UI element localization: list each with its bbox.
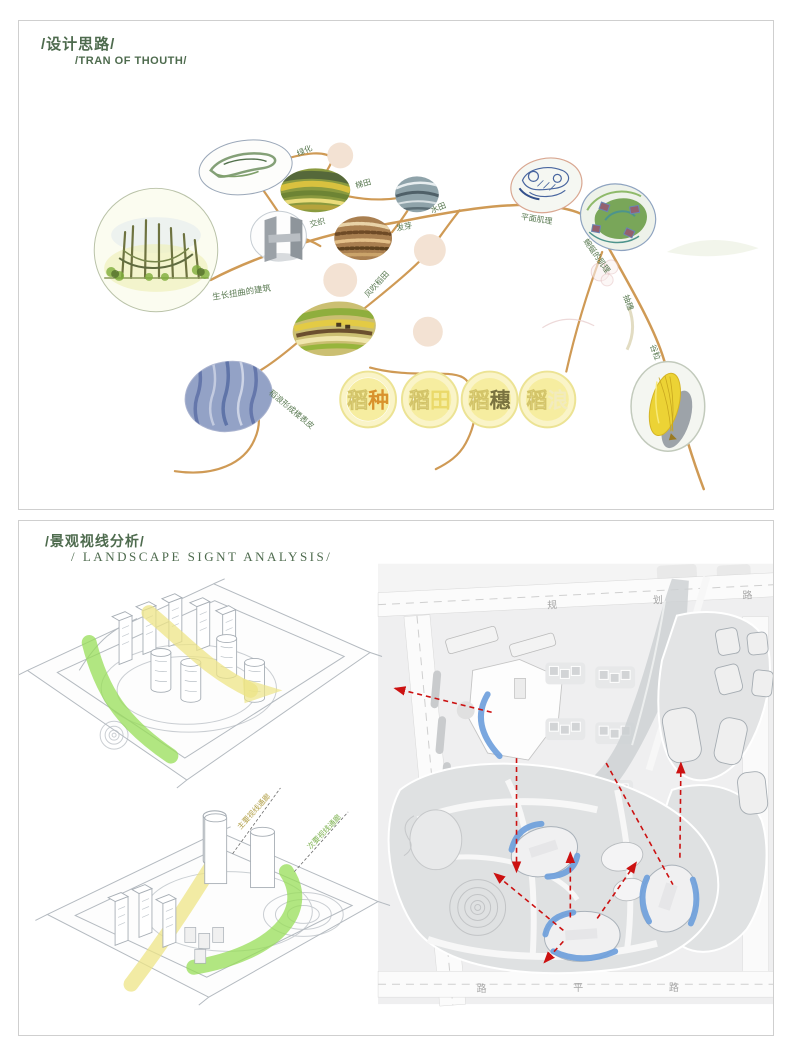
stage-circle-daolang: 稻浪	[519, 372, 575, 428]
panel2-title-en: / LANDSCAPE SIGNT ANALYSIS/	[71, 549, 332, 565]
stage-char: 稻	[526, 388, 547, 412]
design-thinking-panel: /设计思路/ /TRAN OF THOUTH/	[18, 20, 774, 510]
sightline-analysis-panel: /景观视线分析/ / LANDSCAPE SIGNT ANALYSIS/	[18, 520, 774, 1036]
stage-char: 田	[430, 389, 451, 412]
road-char: 路	[477, 982, 487, 995]
panel2-title-cn: /景观视线分析/	[45, 531, 145, 551]
stage-circles: 稻种 稻田 稻穗 稻浪	[340, 372, 575, 428]
concept-diagram: 稻种 稻田 稻穗 稻浪 绿化 梯田 水田 交织 发芽	[19, 21, 773, 509]
beige-circle	[413, 317, 443, 347]
node-concrete-model	[251, 211, 307, 262]
label-grain: 谷粒	[648, 343, 663, 361]
label-wind-field: 风吹稻田	[362, 269, 391, 299]
stage-char: 种	[367, 389, 389, 412]
analysis-graphics: 规 划 路 路 平 路 路	[19, 521, 773, 1035]
axon-view-2: 主要视线通廊 次要视线通廊	[35, 788, 390, 1005]
road-char: 平	[573, 983, 583, 994]
stage-circle-daotian: 稻田	[402, 372, 458, 428]
label-greening: 绿化	[295, 142, 314, 158]
svg-text:稻浪: 稻浪	[526, 388, 568, 412]
beige-circle	[323, 263, 357, 297]
node-building-sketch	[94, 188, 217, 311]
svg-text:稻穗: 稻穗	[469, 388, 511, 412]
label-growing-building: 生长扭曲的建筑	[211, 283, 272, 302]
node-fabric-texture	[179, 355, 277, 439]
label-plan-texture: 平面肌理	[520, 212, 553, 226]
label-wave-skin: 稻浪形成楼表皮	[267, 387, 316, 430]
svg-text:稻种: 稻种	[347, 388, 389, 412]
stage-char: 稻	[347, 388, 368, 412]
node-seeds-photo	[334, 216, 392, 260]
road-char: 路	[742, 588, 753, 602]
road-char: 划	[652, 593, 663, 607]
panel1-title-en: /TRAN OF THOUTH/	[75, 55, 187, 67]
label-terrace: 梯田	[354, 176, 372, 190]
beige-circle	[414, 234, 446, 266]
panel1-title-cn: /设计思路/	[41, 33, 115, 54]
label-heading: 抽穗	[621, 293, 636, 311]
stage-char: 稻	[469, 388, 490, 412]
stage-char: 穗	[490, 388, 511, 412]
axon-view-1	[19, 579, 382, 788]
beige-circle	[327, 143, 353, 169]
road-char: 规	[547, 598, 558, 612]
site-plan: 规 划 路 路 平 路 路	[378, 564, 773, 1006]
label-secondary-corridor: 次要视线通廊	[305, 812, 344, 852]
stage-circle-daozhong: 稻种	[340, 372, 396, 428]
node-plan-sketch	[506, 152, 587, 220]
svg-text:稻田: 稻田	[409, 388, 451, 412]
road-char: 路	[669, 981, 679, 994]
page: { "panel1": { "title_cn": "/设计思路/", "tit…	[0, 0, 790, 1051]
stage-char: 浪	[547, 388, 568, 412]
node-terrace-photo	[280, 168, 350, 212]
label-interweave: 交织	[308, 216, 326, 230]
stage-char: 稻	[409, 388, 430, 412]
node-grain	[631, 362, 705, 452]
stage-circle-daosui: 稻穗	[462, 372, 518, 428]
